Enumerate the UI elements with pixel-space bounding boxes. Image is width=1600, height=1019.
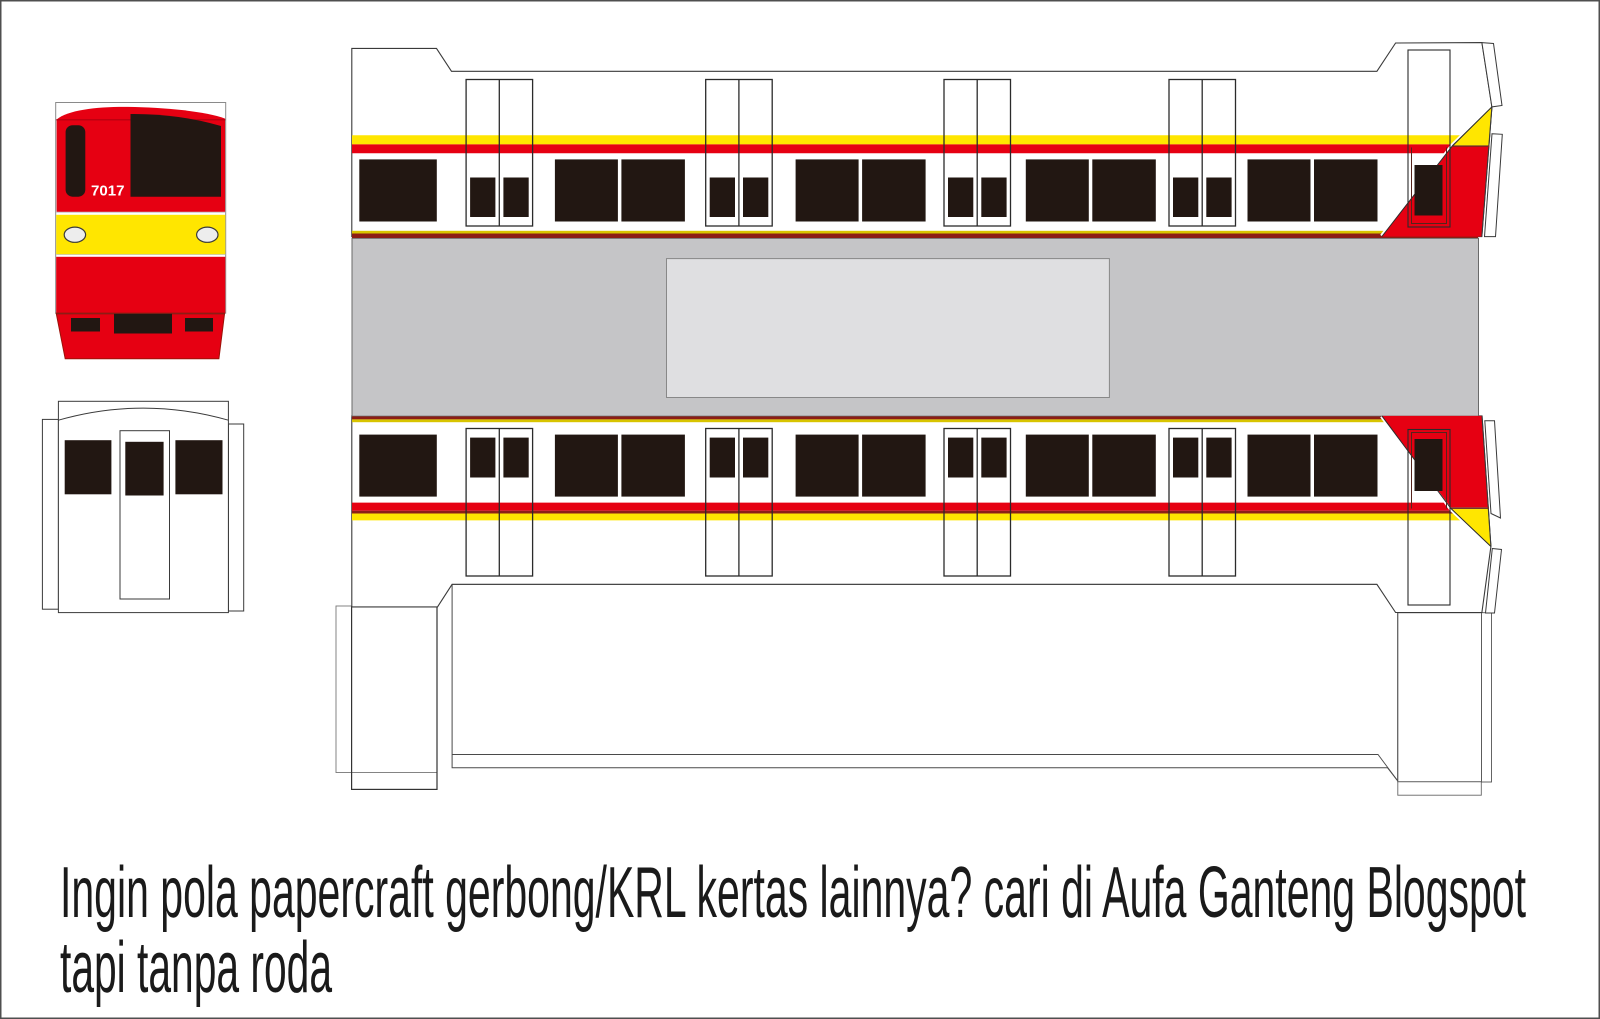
svg-text:7017: 7017 xyxy=(91,183,125,200)
svg-text:Ingin pola papercraft gerbong/: Ingin pola papercraft gerbong/KRL kertas… xyxy=(60,853,1526,933)
svg-text:tapi tanpa roda: tapi tanpa roda xyxy=(60,928,333,1008)
